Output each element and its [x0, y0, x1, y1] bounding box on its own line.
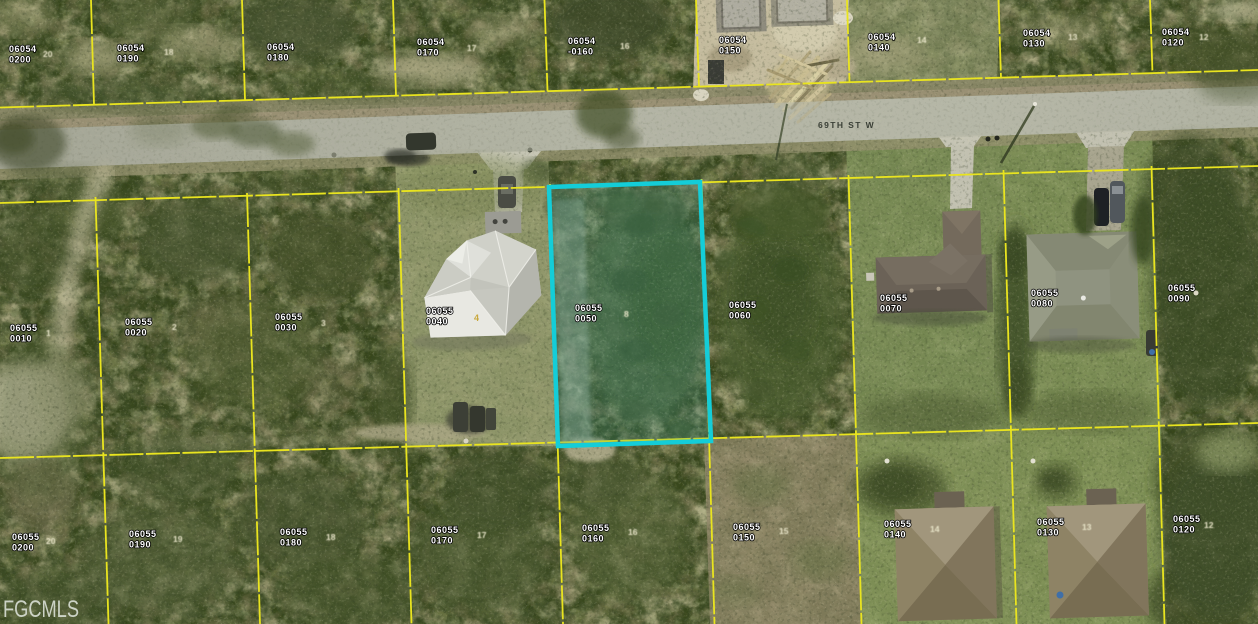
svg-text:8: 8: [624, 309, 629, 319]
svg-text:20: 20: [43, 49, 53, 59]
svg-text:17: 17: [477, 530, 487, 540]
svg-text:16: 16: [628, 527, 638, 537]
svg-text:69TH ST W: 69TH ST W: [818, 120, 875, 130]
svg-text:2: 2: [172, 322, 177, 332]
svg-text:14: 14: [930, 524, 940, 534]
svg-text:18: 18: [164, 47, 174, 57]
svg-text:15: 15: [779, 526, 789, 536]
svg-text:14: 14: [917, 35, 927, 45]
svg-text:12: 12: [1204, 520, 1214, 530]
svg-text:18: 18: [326, 532, 336, 542]
svg-text:3: 3: [321, 318, 326, 328]
svg-text:13: 13: [1068, 32, 1078, 42]
svg-text:20: 20: [46, 536, 56, 546]
svg-text:FGCMLS: FGCMLS: [3, 596, 79, 623]
svg-text:16: 16: [620, 41, 630, 51]
svg-text:12: 12: [1199, 32, 1209, 42]
svg-text:06054-0160: 06054-0160: [568, 36, 596, 57]
svg-text:4: 4: [474, 313, 479, 323]
svg-text:13: 13: [1082, 522, 1092, 532]
svg-text:17: 17: [467, 43, 477, 53]
svg-text:1: 1: [46, 328, 51, 338]
svg-text:19: 19: [173, 534, 183, 544]
